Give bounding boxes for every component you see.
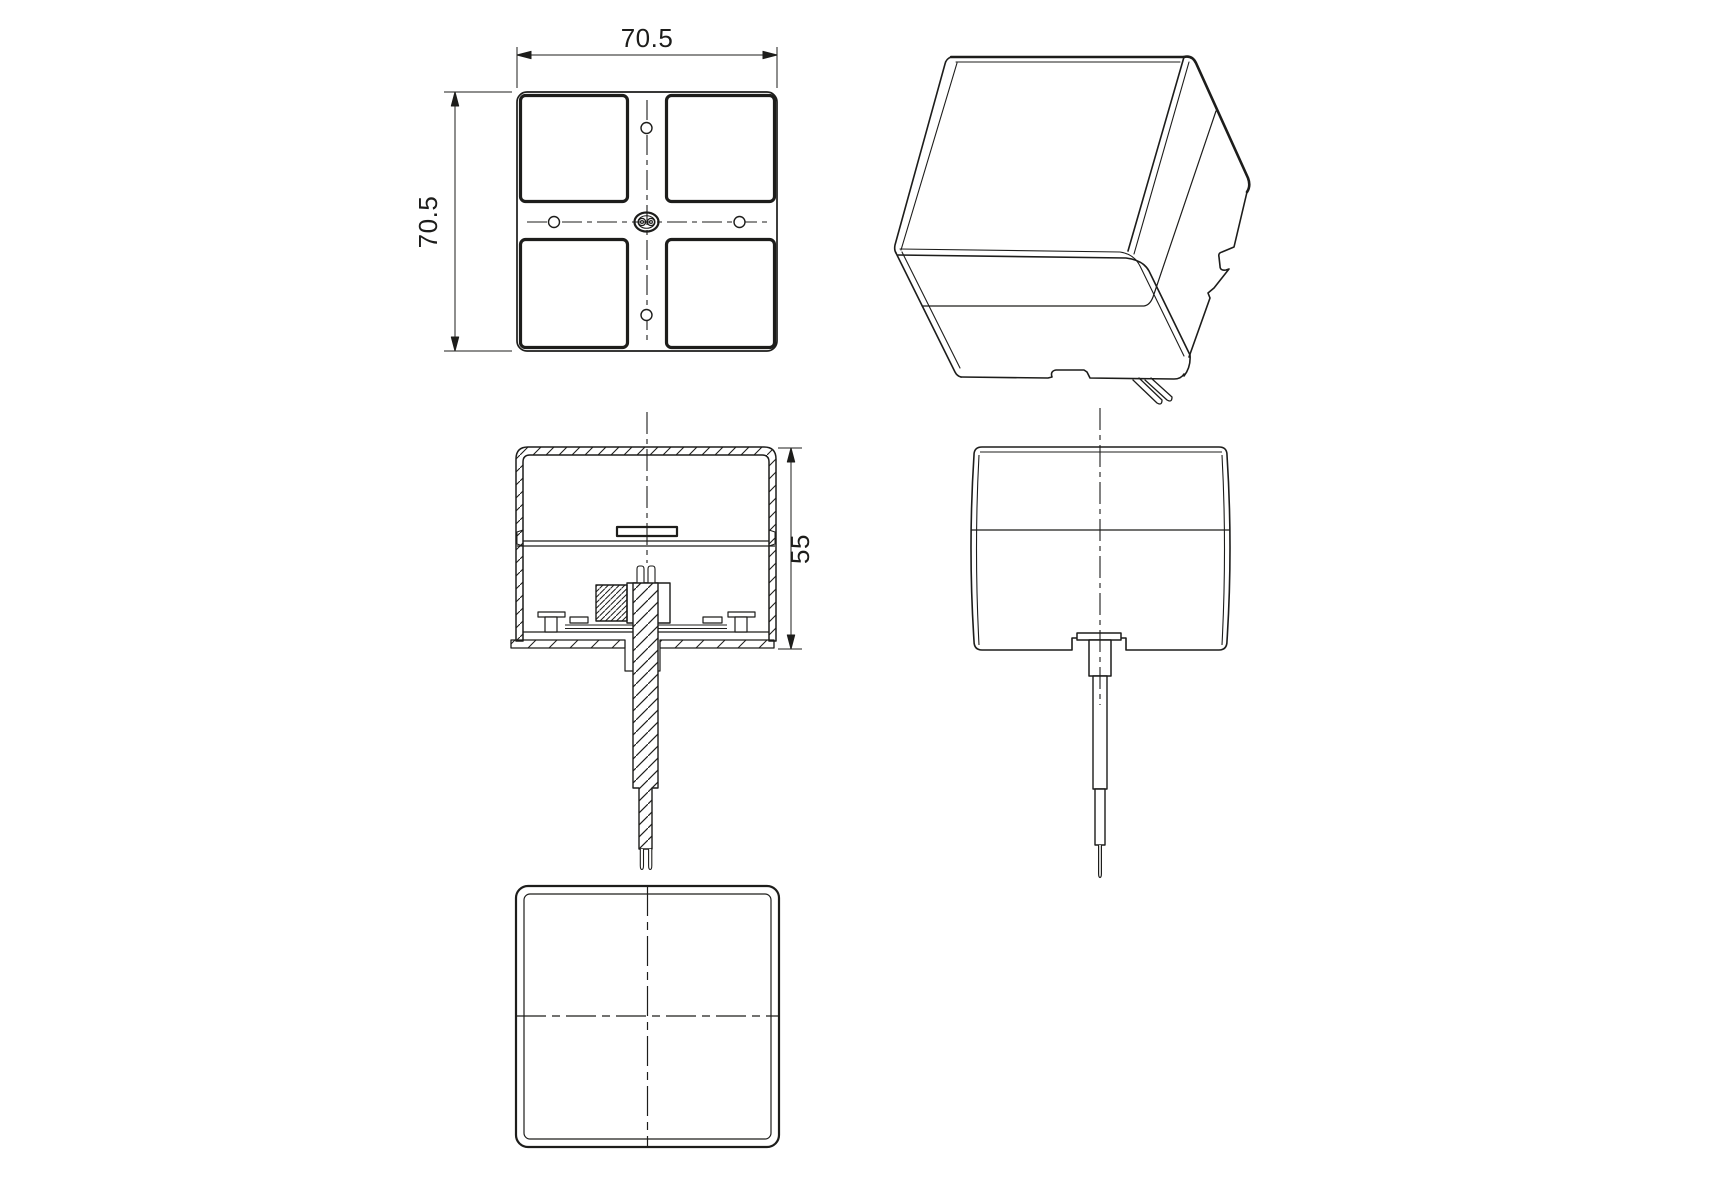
side-right-edge-round <box>1222 455 1225 645</box>
cable-sleeve <box>1093 676 1107 789</box>
cable-sleeve-thin <box>1095 789 1105 845</box>
arrowhead-down <box>787 635 794 649</box>
bottom-view <box>516 886 779 1147</box>
dim-width: 70.5 <box>517 23 777 88</box>
section-view: 55 <box>511 412 815 870</box>
isometric-view <box>895 57 1250 404</box>
arrowhead-right <box>763 51 777 58</box>
iso-front-right-edge-round <box>1134 62 1189 254</box>
cable-wire-left <box>640 849 643 870</box>
iso-left-edge-round <box>901 63 957 250</box>
iso-front-bottom-edge <box>898 255 1190 376</box>
arrowhead-up <box>451 92 458 106</box>
side-left-edge-round <box>977 455 980 645</box>
front-view: 70.5 70.5 <box>413 23 777 351</box>
drawing-sheet: 70.5 70.5 <box>0 0 1715 1200</box>
iso-lower-left-edge <box>896 253 961 377</box>
side-view <box>971 408 1230 878</box>
iso-back-right-edge <box>1184 57 1249 192</box>
mounting-hole-left <box>549 217 560 228</box>
wire-prong-right <box>648 566 655 583</box>
iso-lower-left-edge-round <box>902 252 960 368</box>
base-rim-right <box>660 640 774 648</box>
clip-bar-left <box>538 612 565 617</box>
mounting-hole-right <box>734 217 745 228</box>
mounting-hole-bottom <box>641 310 652 321</box>
iso-front-right-edge <box>1128 57 1184 251</box>
dim-depth: 55 <box>778 448 815 649</box>
wire-prong-left <box>637 566 644 583</box>
gland-flange <box>1077 633 1121 640</box>
pad-right <box>703 617 722 623</box>
coil-section <box>596 585 627 621</box>
cable-wire-right <box>649 849 652 870</box>
mounting-hole-top <box>641 123 652 134</box>
clip-stem-right <box>735 617 747 632</box>
arrowhead-up <box>787 448 794 462</box>
clip-stem-left <box>545 617 557 632</box>
iso-front-bottom-edge-round <box>900 249 1184 356</box>
iso-right-clip-edge <box>1189 192 1247 357</box>
dim-depth-label: 55 <box>785 534 815 564</box>
arrowhead-left <box>517 51 531 58</box>
side-wire <box>1099 845 1102 878</box>
iso-parting-line <box>922 111 1216 306</box>
arrowhead-down <box>451 337 458 351</box>
technical-drawing: 70.5 70.5 <box>0 0 1715 1200</box>
pad-left <box>570 617 588 623</box>
dim-height-label: 70.5 <box>413 196 443 249</box>
iso-left-edge <box>895 57 951 253</box>
base-rim-left <box>511 640 625 648</box>
iso-wires <box>1133 378 1172 404</box>
clip-bar-right <box>728 612 755 617</box>
cable-body <box>633 583 658 849</box>
dim-width-label: 70.5 <box>621 23 674 53</box>
dim-height: 70.5 <box>413 92 512 351</box>
